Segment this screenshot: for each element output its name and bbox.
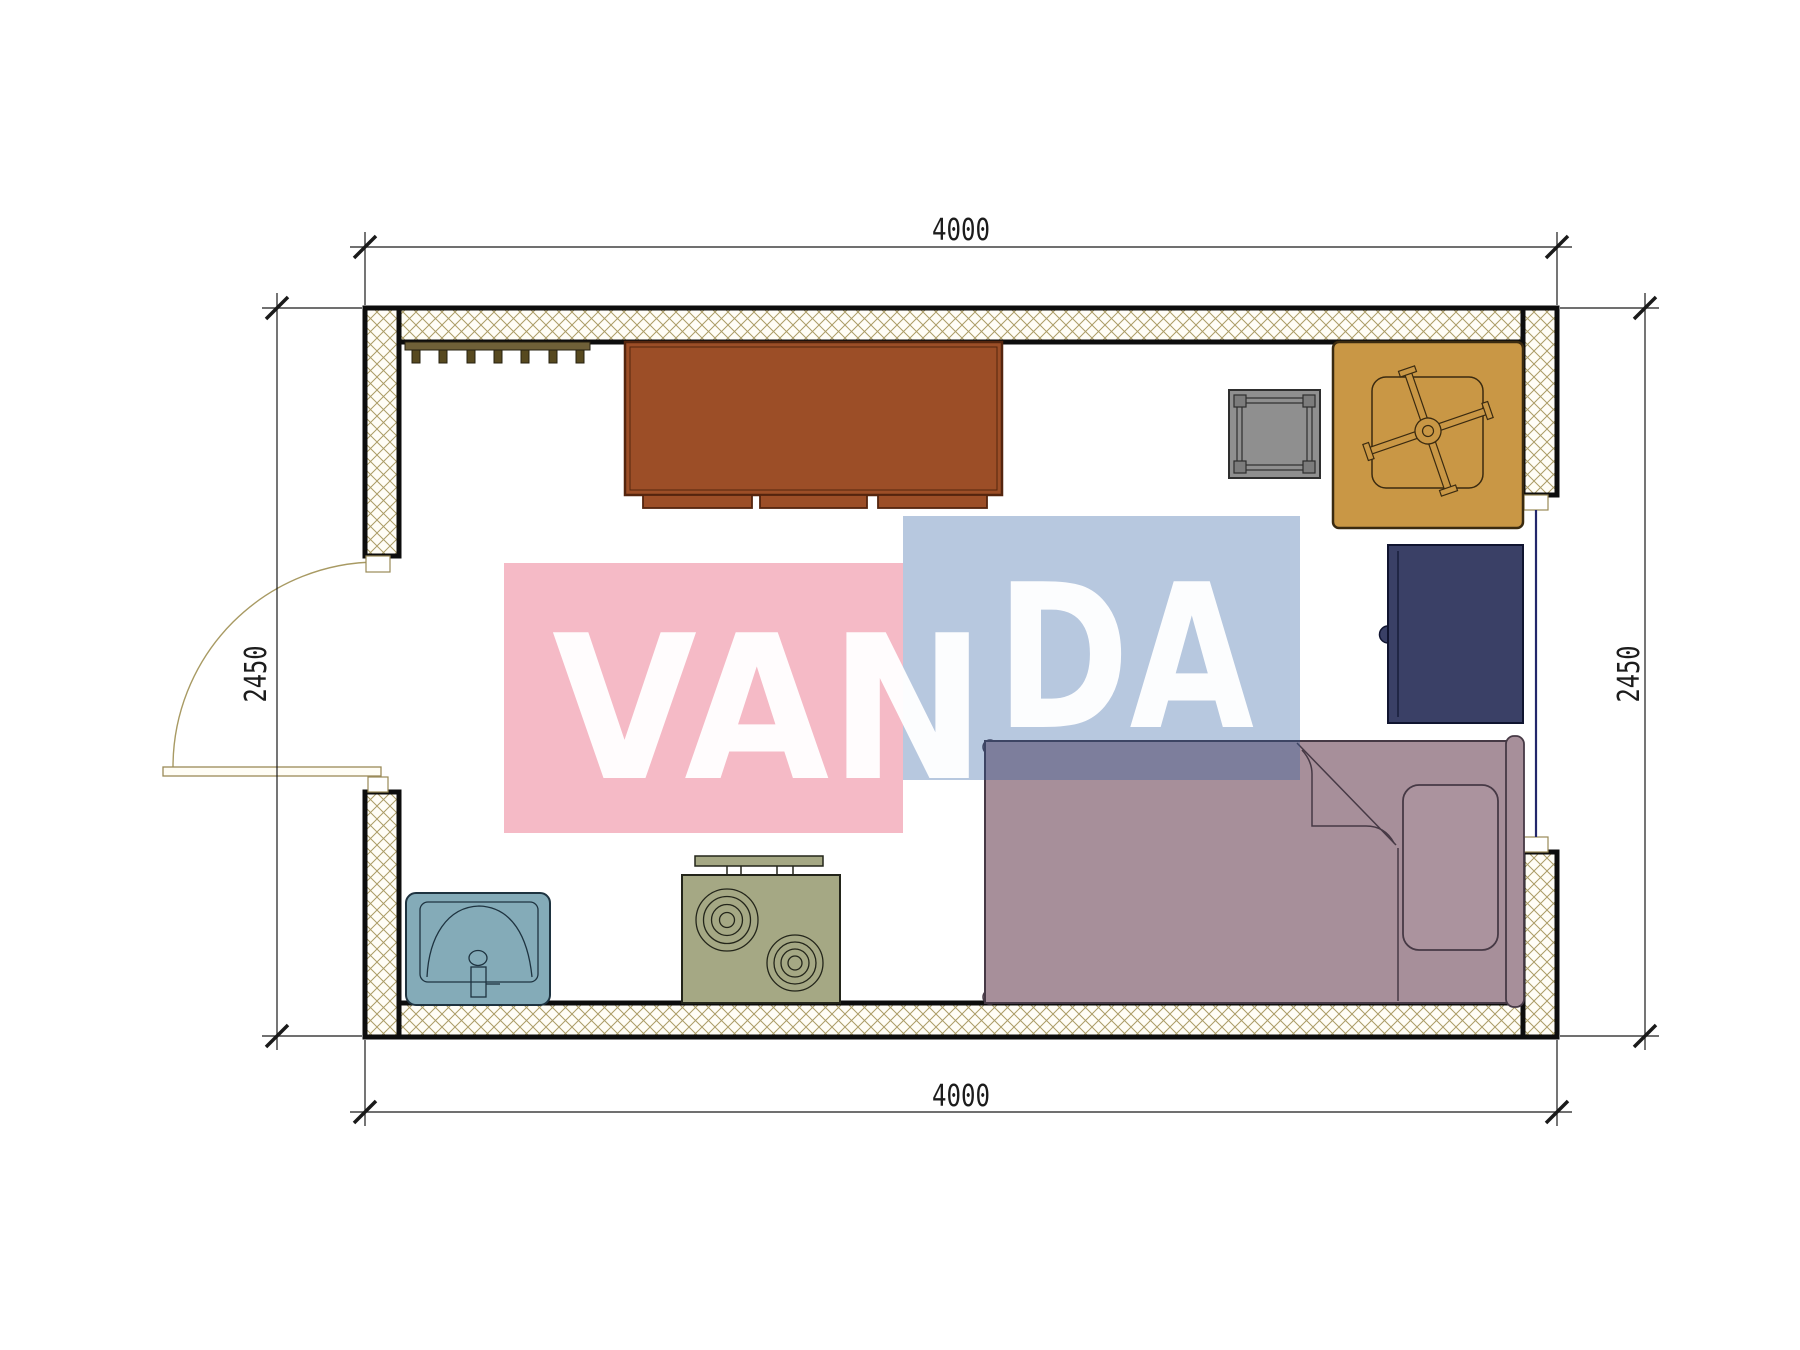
coat-rack-bar [405, 342, 590, 350]
bed-headboard [1506, 736, 1524, 1007]
bed-pillow [1403, 785, 1498, 950]
window [1524, 495, 1548, 852]
wall-right-upper [1523, 308, 1557, 495]
cabinet-drawers [643, 495, 987, 508]
door-jamb-top [366, 556, 390, 572]
wall-left-upper [365, 308, 399, 556]
table-icon [1333, 342, 1523, 528]
dimension-left-lines [262, 293, 362, 1050]
sink-icon [406, 893, 550, 1005]
stove-icon [682, 856, 840, 1003]
watermark-text-van: VAN [552, 593, 986, 826]
dimension-top-label: 4000 [932, 213, 990, 248]
wall-top [365, 308, 1557, 342]
door-leaf [163, 767, 381, 776]
coat-rack-icon [405, 342, 590, 363]
sink-counter [406, 893, 550, 1005]
dimension-left-label: 2450 [239, 646, 274, 703]
dimension-right-label: 2450 [1612, 646, 1647, 703]
door-swing-arc [173, 562, 378, 767]
floor-plan-drawing: VAN DA 4000 4000 2450 2450 [0, 0, 1800, 1350]
fridge-handle [1380, 626, 1389, 643]
stool-icon [1229, 390, 1320, 478]
fridge-body [1388, 545, 1523, 723]
floor-plan-canvas: VAN DA 4000 4000 2450 2450 [0, 0, 1800, 1350]
wall-left-lower [365, 792, 399, 1037]
door-jamb-bottom [368, 777, 388, 792]
window-jamb-top [1524, 495, 1548, 510]
cabinet-icon [625, 342, 1002, 508]
coat-rack-hooks [412, 350, 584, 363]
cabinet-body [625, 342, 1002, 495]
fridge-icon [1380, 545, 1524, 723]
wall-right-lower [1523, 852, 1557, 1037]
dimension-bottom-label: 4000 [932, 1079, 990, 1114]
stove-body [682, 875, 840, 1003]
stove-handle [695, 856, 823, 866]
window-jamb-bottom [1524, 837, 1548, 852]
wall-bottom [365, 1003, 1557, 1037]
watermark-text-da: DA [996, 542, 1254, 775]
